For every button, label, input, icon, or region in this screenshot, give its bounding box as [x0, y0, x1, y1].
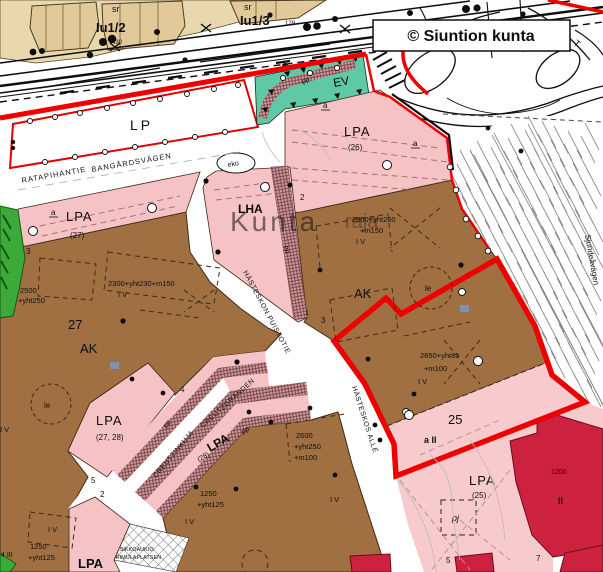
svg-text:4 III: 4 III	[1, 552, 13, 559]
svg-text:+m100: +m100	[294, 453, 317, 462]
svg-text:II: II	[558, 496, 563, 506]
svg-text:4: 4	[180, 385, 185, 394]
svg-text:1: 1	[305, 310, 309, 317]
svg-text:LPA: LPA	[78, 556, 104, 571]
svg-text:7: 7	[536, 554, 541, 563]
svg-text:ESIKKOAUKIO: ESIKKOAUKIO	[116, 547, 154, 553]
svg-text:(26): (26)	[348, 143, 363, 152]
svg-text:AK: AK	[354, 286, 372, 301]
svg-text:a: a	[413, 139, 418, 148]
svg-text:2850+yht85: 2850+yht85	[420, 351, 459, 360]
svg-text:+yht250: +yht250	[18, 296, 45, 305]
svg-text:+yht125: +yht125	[28, 553, 55, 562]
svg-text:LPA: LPA	[66, 209, 93, 224]
svg-text:2300+yht230+m150: 2300+yht230+m150	[108, 279, 175, 288]
svg-text:2600: 2600	[296, 431, 313, 440]
svg-text:5: 5	[91, 476, 96, 485]
svg-text:a: a	[51, 208, 56, 217]
svg-text:27: 27	[68, 317, 82, 332]
svg-text:Kunta: Kunta	[230, 206, 318, 237]
svg-text:LP: LP	[130, 117, 153, 133]
svg-text:le: le	[425, 284, 432, 293]
svg-text:+m100: +m100	[424, 364, 447, 373]
svg-text:430: 430	[112, 40, 123, 46]
svg-text:1200: 1200	[551, 469, 567, 476]
svg-text:(27): (27)	[70, 231, 85, 240]
svg-text:I V: I V	[356, 237, 365, 246]
svg-text:sr: sr	[112, 4, 120, 14]
svg-text:LPA: LPA	[344, 124, 371, 139]
svg-text:(27, 28): (27, 28)	[96, 433, 124, 442]
svg-text:I V: I V	[185, 517, 194, 526]
svg-text:3: 3	[321, 316, 326, 325]
svg-text:I V: I V	[48, 525, 57, 534]
svg-text:LPA: LPA	[469, 473, 496, 488]
svg-text:3: 3	[26, 247, 31, 256]
svg-text:a II: a II	[424, 435, 437, 445]
svg-text:I V: I V	[0, 425, 9, 434]
svg-text:le: le	[44, 401, 51, 410]
svg-text:pp: pp	[282, 245, 290, 254]
svg-text:a: a	[323, 101, 328, 110]
svg-text:I V: I V	[118, 290, 127, 299]
svg-text:I V: I V	[418, 377, 427, 386]
svg-text:© Siuntion kunta: © Siuntion kunta	[407, 28, 534, 45]
svg-text:1250: 1250	[200, 489, 217, 498]
svg-text:I V: I V	[330, 495, 339, 504]
svg-text:(25): (25)	[472, 491, 487, 500]
svg-text:5: 5	[446, 556, 451, 565]
svg-text:129: 129	[285, 21, 296, 27]
svg-text:LPA: LPA	[96, 413, 123, 428]
svg-text:+yht125: +yht125	[197, 500, 224, 509]
svg-text:Iu1/3: Iu1/3	[240, 13, 270, 28]
svg-text:Iu1/2: Iu1/2	[96, 20, 126, 35]
svg-text:2: 2	[300, 193, 305, 202]
svg-text:AK: AK	[80, 341, 98, 356]
svg-text:PRIMULAPLATSEN: PRIMULAPLATSEN	[112, 555, 161, 561]
svg-text:EV: EV	[332, 73, 350, 90]
svg-text:2: 2	[100, 490, 105, 499]
svg-text:2500: 2500	[20, 286, 37, 295]
svg-text:25: 25	[448, 412, 462, 427]
svg-text:sr: sr	[244, 2, 252, 12]
svg-text:+m150: +m150	[360, 226, 383, 235]
svg-text:pj: pj	[451, 513, 460, 523]
svg-text:+yht250: +yht250	[294, 442, 321, 451]
